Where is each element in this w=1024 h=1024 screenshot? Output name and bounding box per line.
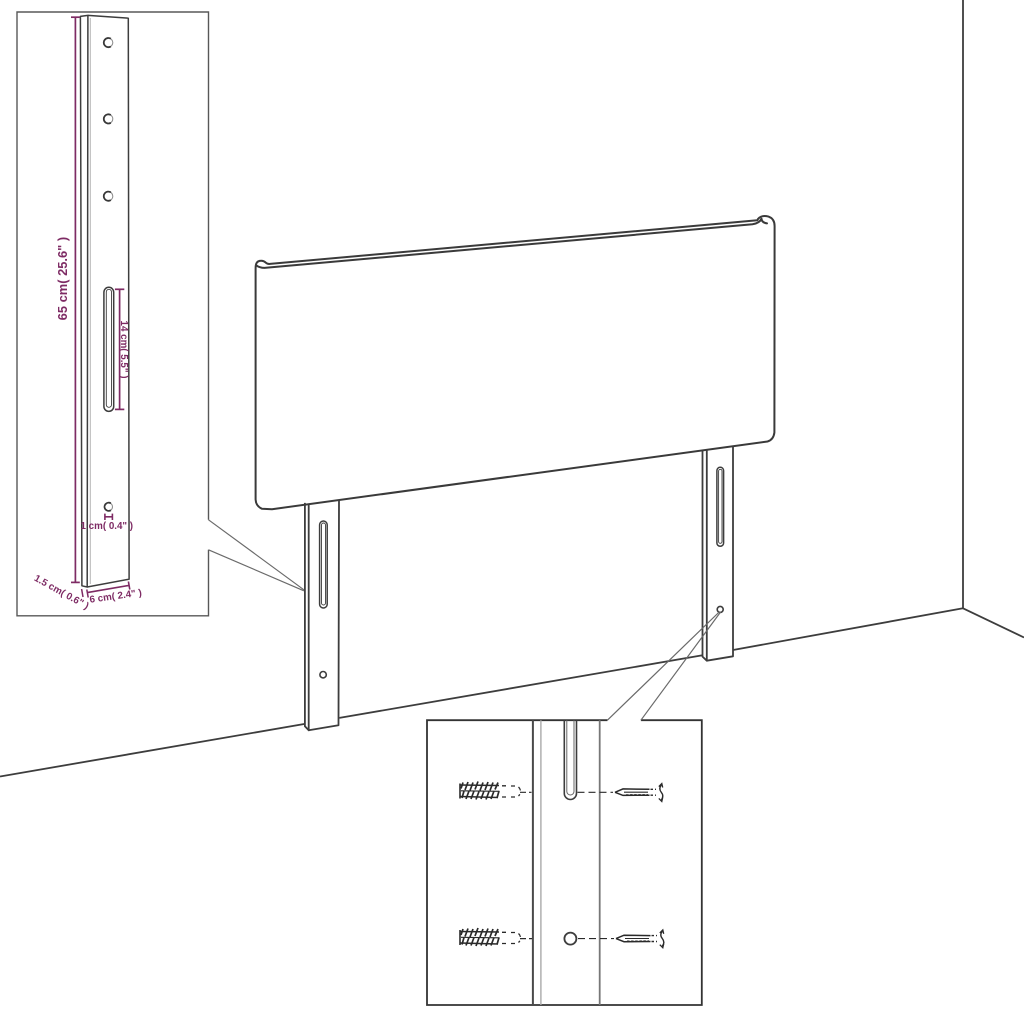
svg-text:65 cm( 25.6" ): 65 cm( 25.6" ) bbox=[55, 237, 70, 321]
svg-text:1 cm( 0.4" ): 1 cm( 0.4" ) bbox=[81, 521, 134, 532]
svg-text:14 cm( 5.5" ): 14 cm( 5.5" ) bbox=[118, 320, 129, 378]
